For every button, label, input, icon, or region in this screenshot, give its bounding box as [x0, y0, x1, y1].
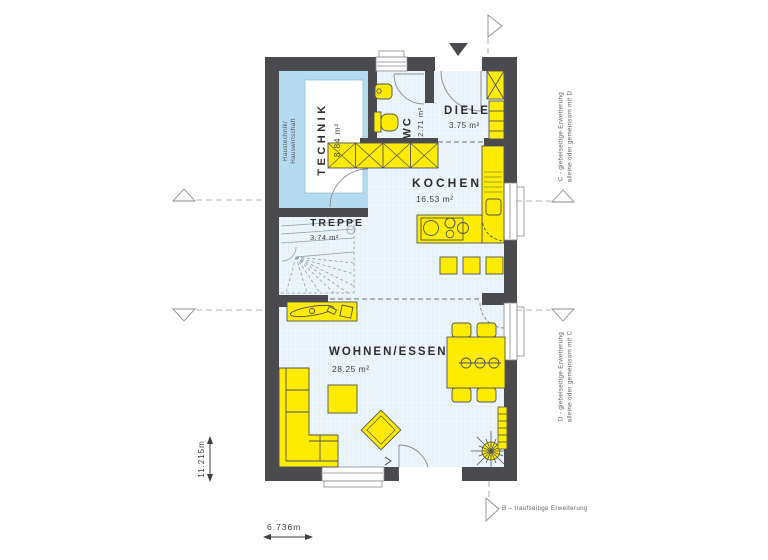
expansion-d-annotation: D - giebelseitige Erweiterung alleine od… — [558, 325, 575, 429]
marker-flag-triangle — [488, 15, 502, 37]
sideboard — [287, 302, 357, 321]
chair — [477, 388, 496, 402]
technik-room-area: 8.84 m² — [332, 112, 342, 168]
technik-sublabel-line1: Haustechnik/ — [282, 121, 290, 161]
diele-room-name: DIELE — [444, 105, 490, 117]
floorplan-canvas: Haustechnik/ Hauswirtschaft TECHNIK 8.84… — [0, 0, 768, 560]
diele-room-area: 3.75 m² — [449, 121, 480, 130]
expansion-d-line2: alleine oder gemeinsam mit C — [566, 331, 574, 423]
bar-stools — [440, 257, 503, 274]
entrance-opening — [435, 57, 482, 71]
wc-room-area: 2.71 m² — [415, 100, 425, 144]
wohnen-essen-room-area: 28.25 m² — [332, 364, 370, 374]
treppe-room-name: TREPPE — [310, 217, 364, 229]
marker-left-up-triangle — [173, 189, 195, 201]
wohnen-essen-room-name: WOHNEN/ESSEN — [329, 346, 448, 358]
cabinet-row — [328, 143, 438, 168]
expansion-c-line1: C - giebelseitige Erweiterung — [558, 92, 566, 181]
expansion-c-annotation: C - giebelseitige Erweiterung alleine od… — [558, 85, 575, 189]
marker-right-down-triangle — [552, 309, 574, 321]
radiator — [498, 407, 507, 449]
washbasin — [375, 84, 392, 99]
chair — [477, 323, 496, 337]
technik-sublabel: Haustechnik/ Hauswirtschaft — [282, 103, 298, 179]
toilet-bowl — [381, 114, 398, 131]
marker-left-down-triangle — [173, 309, 195, 321]
kochen-room-area: 16.53 m² — [416, 194, 454, 204]
coffee-table — [328, 385, 357, 413]
expansion-c-line2: alleine oder gemeinsam mit D — [566, 91, 574, 183]
technik-room-name: TECHNIK — [315, 99, 329, 179]
technik-sublabel-line2: Hauswirtschaft — [290, 118, 298, 164]
toilet-tank — [374, 112, 381, 132]
height-dimension-label: 11.215m — [196, 435, 206, 483]
kochen-room-name: KOCHEN — [412, 176, 482, 190]
chair — [452, 388, 471, 402]
terrace-door-opening — [399, 467, 462, 481]
treppe-room-area: 3.74 m² — [310, 233, 339, 242]
expansion-b-annotation: B – traufseitige Erweiterung — [502, 505, 588, 513]
wc-room-name: WC — [401, 110, 414, 146]
width-dimension-label: 6.736m — [267, 522, 301, 532]
diele-shelf — [489, 101, 504, 139]
marker-right-up-triangle — [552, 190, 574, 202]
kitchen-peninsula — [417, 215, 482, 243]
chair — [452, 323, 471, 337]
expansion-d-line1: D - giebelseitige Erweiterung — [558, 332, 566, 421]
floorplan-drawing — [0, 0, 768, 560]
entrance-marker-triangle — [449, 43, 468, 56]
marker-b-triangle — [486, 498, 499, 521]
dining-table — [447, 337, 505, 388]
